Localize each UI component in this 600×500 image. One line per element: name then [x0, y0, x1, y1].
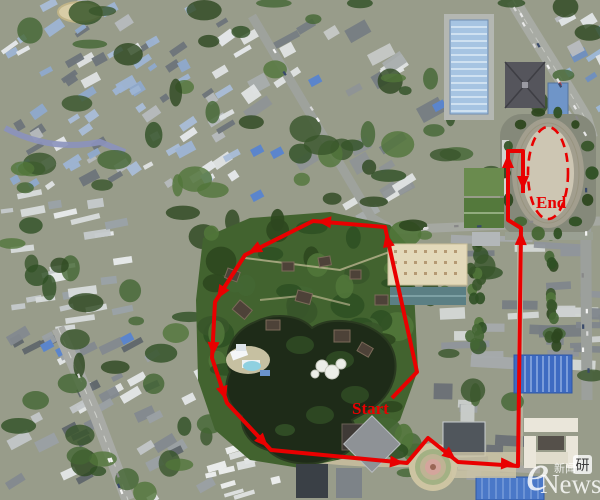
route-start-label: Start [352, 399, 389, 418]
screenshot-root: Start End e 新闻 News 研 [0, 0, 600, 500]
watermark-news-text: News [540, 469, 600, 499]
route-end-label: End [536, 193, 567, 212]
watermark-badge-char: 研 [576, 457, 590, 473]
satellite-map: Start End e 新闻 News 研 [0, 0, 600, 500]
